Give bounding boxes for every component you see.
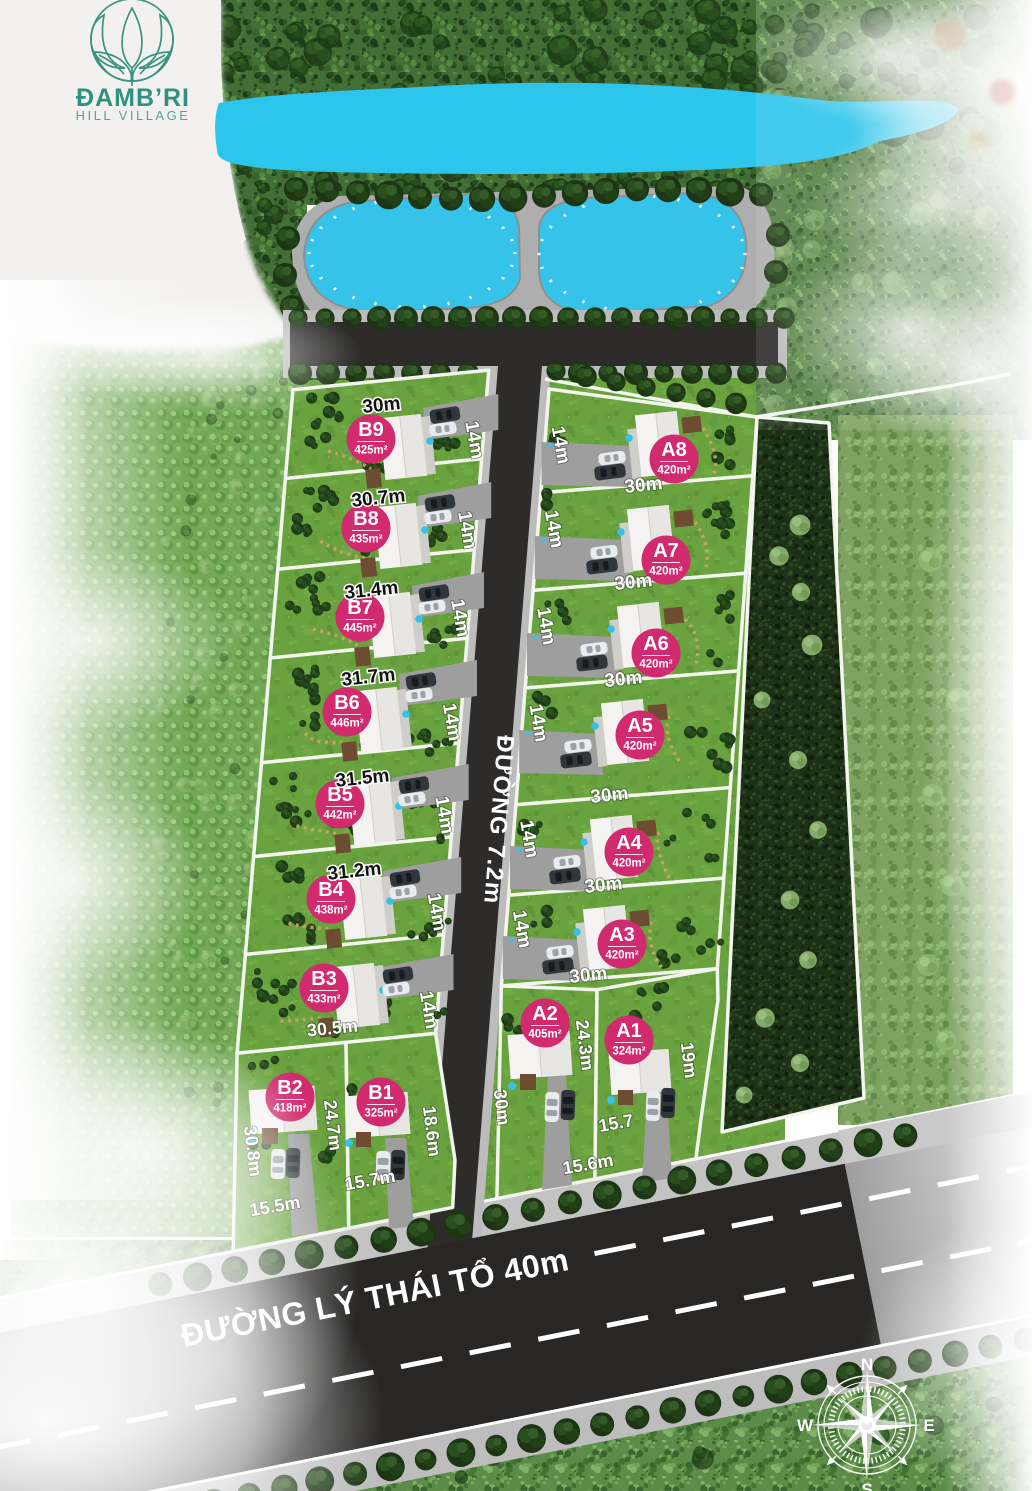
svg-text:A3: A3 — [609, 924, 635, 946]
svg-text:420m²: 420m² — [639, 659, 672, 671]
svg-text:30m: 30m — [568, 963, 608, 988]
svg-text:30m: 30m — [613, 570, 653, 595]
svg-text:425m²: 425m² — [354, 445, 387, 457]
svg-text:A2: A2 — [532, 1003, 558, 1025]
svg-text:405m²: 405m² — [528, 1029, 561, 1041]
svg-text:324m²: 324m² — [612, 1046, 645, 1058]
svg-text:A5: A5 — [627, 715, 653, 737]
svg-text:420m²: 420m² — [623, 741, 656, 753]
svg-text:30m: 30m — [623, 473, 663, 498]
svg-text:420m²: 420m² — [657, 465, 690, 477]
svg-text:W: W — [797, 1416, 814, 1435]
svg-text:435m²: 435m² — [349, 534, 382, 546]
svg-text:420m²: 420m² — [649, 566, 682, 578]
svg-text:420m²: 420m² — [605, 950, 638, 962]
svg-text:325m²: 325m² — [364, 1108, 397, 1120]
svg-text:438m²: 438m² — [314, 905, 347, 917]
svg-text:A7: A7 — [653, 540, 679, 562]
svg-text:HILL VILLAGE: HILL VILLAGE — [76, 108, 191, 123]
svg-text:30m: 30m — [603, 667, 643, 692]
svg-text:B3: B3 — [311, 968, 337, 990]
svg-text:30m: 30m — [589, 783, 629, 808]
svg-text:446m²: 446m² — [330, 718, 363, 730]
svg-text:B6: B6 — [334, 692, 360, 714]
svg-text:30m: 30m — [583, 873, 623, 898]
svg-text:A4: A4 — [616, 832, 642, 854]
svg-text:A6: A6 — [643, 633, 669, 655]
svg-text:30m: 30m — [361, 393, 401, 418]
svg-text:B1: B1 — [368, 1082, 394, 1104]
svg-text:433m²: 433m² — [307, 994, 340, 1006]
svg-text:A1: A1 — [616, 1020, 642, 1042]
svg-text:S: S — [861, 1480, 872, 1491]
svg-text:420m²: 420m² — [612, 858, 645, 870]
svg-text:B9: B9 — [358, 419, 384, 441]
svg-text:A8: A8 — [661, 439, 687, 461]
svg-text:445m²: 445m² — [343, 623, 376, 635]
svg-text:442m²: 442m² — [323, 810, 356, 822]
